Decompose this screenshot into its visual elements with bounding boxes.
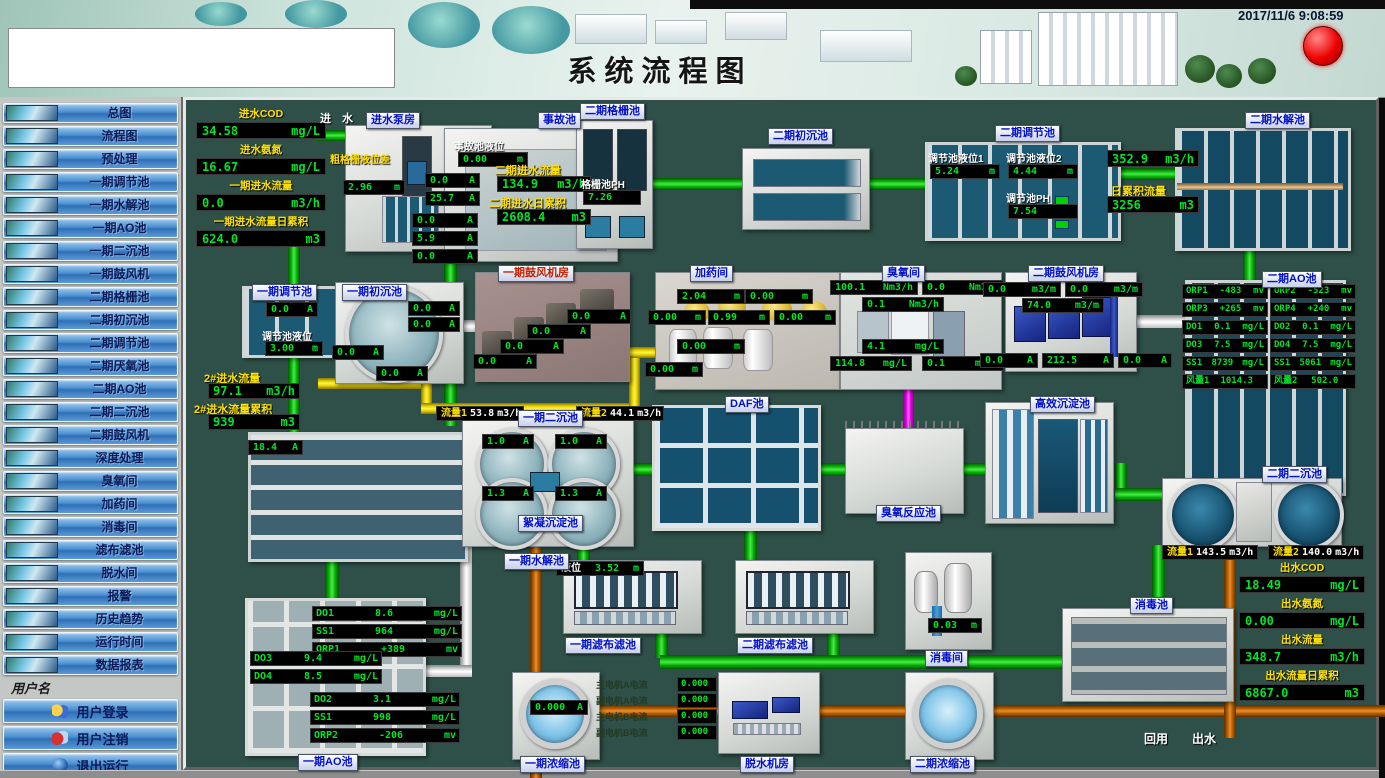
nav-thumbnail-icon — [6, 496, 58, 512]
ao2-readout: DO20.1mg/L — [1270, 320, 1356, 335]
sidebar-nav-item[interactable]: 滤布滤池 — [3, 540, 178, 560]
office-building-icon — [980, 30, 1032, 84]
ao2-readout: DO47.5mg/L — [1270, 338, 1356, 353]
belt-press-icon — [772, 697, 800, 713]
screen-level-label: 粗格栅液位差 — [330, 151, 390, 166]
datetime-display: 2017/11/6 9:08:59 — [1238, 8, 1344, 23]
stat-label: 出水流量日累积 — [1239, 668, 1365, 683]
stat-label: 一期进水流量 — [196, 178, 326, 193]
total2b-value: 2608.4m3 — [497, 209, 591, 225]
pump-current: 0.0A — [412, 249, 478, 264]
nav-thumbnail-icon — [6, 128, 58, 144]
nav-label: 历史趋势 — [62, 613, 177, 625]
badge-cloth2: 二期滤布滤池 — [737, 637, 813, 654]
badge-regulate1: 一期调节池 — [252, 284, 317, 301]
clarifier-photo-icon — [492, 6, 570, 54]
ao2-readout: DO10.1mg/L — [1182, 320, 1268, 335]
badge-blower2: 二期鼓风机房 — [1028, 265, 1104, 282]
sidebar-nav-item[interactable]: 一期二沉池 — [3, 241, 178, 261]
user-logout-icon — [52, 731, 68, 745]
stat-row: 进水COD 34.58mg/L — [196, 106, 326, 139]
filter-discs — [574, 571, 678, 609]
sidebar-nav-item[interactable]: 深度处理 — [3, 448, 178, 468]
nav-label: 二期初沉池 — [62, 314, 177, 326]
nav-label: 深度处理 — [62, 452, 177, 464]
dewater-motor-readouts: 主电机A电流 0.000 副电机A电流 0.000 主电机B电流 0.000 副… — [596, 676, 720, 740]
nav-thumbnail-icon — [6, 105, 58, 121]
disinfect-room — [905, 552, 992, 650]
secondary1-current: 1.0A — [482, 434, 534, 449]
badge-grille2: 二期格栅池 — [580, 103, 645, 120]
motor-label: 副电机A电流 — [596, 694, 674, 707]
nav-thumbnail-icon — [6, 220, 58, 236]
badge-thickener1: 一期浓缩池 — [520, 756, 585, 773]
sidebar-nav-item[interactable]: 流程图 — [3, 126, 178, 146]
filter-trough — [574, 611, 676, 625]
badge-disinfect-room: 消毒间 — [925, 650, 968, 667]
nav-label: 消毒间 — [62, 521, 177, 533]
badge-ozone-room: 臭氧间 — [882, 265, 925, 282]
badge-ao2: 二期AO池 — [1262, 271, 1322, 288]
blower1-current: 0.0A — [527, 324, 591, 339]
motor-current: 0.000 — [677, 725, 717, 740]
sidebar-nav-item[interactable]: 数据报表 — [3, 655, 178, 675]
motor-current: 0.000 — [677, 693, 717, 708]
badge-disinfect-tank: 消毒池 — [1130, 597, 1173, 614]
building-roof-icon — [575, 14, 647, 44]
nav-label: 预处理 — [62, 153, 177, 165]
stat-row: 出水氨氮 0.00mg/L — [1239, 596, 1365, 629]
sidebar-nav-item[interactable]: 运行时间 — [3, 632, 178, 652]
pipe-green — [827, 630, 840, 658]
sidebar-nav-item[interactable]: 报警 — [3, 586, 178, 606]
nav-thumbnail-icon — [6, 197, 58, 213]
sidebar-nav-item[interactable]: 加药间 — [3, 494, 178, 514]
nav-label: 流程图 — [62, 130, 177, 142]
motor-current: 0.000 — [677, 677, 717, 692]
reg1-current: 0.0A — [266, 302, 318, 317]
scada-screen: 系统流程图 2017/11/6 9:08:59 总图 流程图 预处理 — [0, 0, 1385, 778]
bottom-strip — [0, 770, 1379, 778]
reg1-level-value: 3.00m — [265, 341, 323, 356]
tree-icon — [1216, 64, 1242, 88]
nav-label: 二期二沉池 — [62, 406, 177, 418]
badge-primary2: 二期初沉池 — [768, 128, 833, 145]
ozone-flow: 0.1Nm3/h — [862, 297, 944, 312]
pipe-green — [648, 178, 746, 190]
stat-row: 出水流量日累积 6867.0m3 — [1239, 668, 1365, 701]
railing — [845, 421, 962, 429]
nav-label: 一期调节池 — [62, 176, 177, 188]
stat-value-box: 6867.0m3 — [1239, 684, 1365, 701]
flow2-total-value: 939m3 — [208, 414, 300, 430]
lamella-panels — [1080, 419, 1108, 513]
reuse-label: 回用 — [1144, 730, 1168, 747]
ao2-readout: ORP1-483mv — [1182, 284, 1268, 299]
blower1-current: 0.0A — [567, 309, 631, 324]
stat-value-box: 18.49mg/L — [1239, 576, 1365, 593]
nav-thumbnail-icon — [6, 565, 58, 581]
sidebar-nav-item[interactable]: 预处理 — [3, 149, 178, 169]
stat-label: 出水氨氮 — [1239, 596, 1365, 611]
dosing-level: 0.00m — [648, 310, 706, 325]
user-logout-label: 用户注销 — [76, 729, 128, 748]
pipe-tan — [1177, 183, 1343, 190]
motor-label: 主电机B电流 — [596, 710, 674, 723]
stat-row: 一期进水流量 0.0m3/h — [196, 178, 326, 211]
nav-label: 滤布滤池 — [62, 544, 177, 556]
nav-thumbnail-icon — [6, 657, 58, 673]
high-eff-unit — [985, 402, 1114, 524]
nav-thumbnail-icon — [6, 427, 58, 443]
hydrolysis1-current: 18.4A — [248, 440, 303, 455]
motor-row: 副电机B电流 0.000 — [596, 724, 720, 740]
badge-primary1: 一期初沉池 — [342, 284, 407, 301]
stat-value-box: 34.58mg/L — [196, 122, 326, 139]
secondary2-clarifier — [1168, 480, 1238, 550]
ozone-flow: 100.1Nm3/h — [830, 280, 918, 295]
sidebar-nav-item[interactable]: 二期AO池 — [3, 379, 178, 399]
pipe-white — [418, 665, 472, 677]
pipe-green — [655, 630, 668, 658]
badge-dosing: 加药间 — [690, 265, 733, 282]
nav-thumbnail-icon — [6, 174, 58, 190]
ao1-readouts-bottom: DO23.1mg/L SS1998mg/L ORP2-206mv — [310, 692, 460, 746]
nav-thumbnail-icon — [6, 243, 58, 259]
belt-press-icon — [732, 701, 768, 719]
conveyor-icon — [733, 723, 801, 735]
stat-label: 出水流量 — [1239, 632, 1365, 647]
reg2-level1-label: 调节池液位1 — [928, 150, 984, 165]
nav-thumbnail-icon — [6, 381, 58, 397]
sidebar-nav-item[interactable]: 一期鼓风机 — [3, 264, 178, 284]
thickener2-basin — [913, 679, 983, 749]
badge-secondary2: 二期二沉池 — [1262, 466, 1327, 483]
badge-pump-house: 进水泵房 — [366, 112, 420, 129]
dewater-room — [718, 672, 820, 754]
ao1-readout: DO39.4mg/L — [250, 651, 382, 666]
header-blank-panel — [8, 28, 395, 88]
sidebar-nav-item[interactable]: 脱水间 — [3, 563, 178, 583]
badge-accident-tank: 事故池 — [538, 112, 581, 129]
daf-tank — [652, 405, 821, 531]
east-flow-value: 352.9m3/h — [1107, 150, 1199, 167]
pipe-green — [1112, 168, 1178, 180]
user-login-button[interactable]: 用户登录 — [3, 699, 178, 723]
pump-current: 0.0A — [412, 213, 478, 228]
blower2-current: 212.5A — [1042, 353, 1114, 368]
building-roof-icon — [725, 12, 787, 40]
tree-icon — [1185, 55, 1215, 83]
stat-label: 出水COD — [1239, 560, 1365, 575]
motor-label: 副电机B电流 — [596, 726, 674, 739]
motor-row: 主电机B电流 0.000 — [596, 708, 720, 724]
filter-trough — [746, 611, 848, 625]
nav-label: 一期水解池 — [62, 199, 177, 211]
blower1-current: 0.0A — [500, 339, 564, 354]
grille-pump — [619, 216, 645, 238]
accident-level-label: 事故池液位 — [454, 138, 504, 153]
nav-label: 二期AO池 — [62, 383, 177, 395]
sidebar-nav-item[interactable]: 历史趋势 — [3, 609, 178, 629]
inflow-label: 进 水 — [320, 110, 357, 126]
nav-thumbnail-icon — [6, 151, 58, 167]
sidebar-nav-item[interactable]: 一期AO池 — [3, 218, 178, 238]
building-roof-icon — [655, 20, 707, 44]
stat-value-box: 16.67mg/L — [196, 158, 326, 175]
badge-flocculation: 絮凝沉淀池 — [518, 515, 583, 532]
username-label: 用户名 — [11, 678, 178, 697]
pump-current: 5.9A — [412, 231, 478, 246]
cloth1-level: 液位3.52m — [556, 561, 644, 576]
lamella-panels — [992, 409, 1034, 519]
filter-discs — [746, 571, 850, 609]
sidebar-nav-item[interactable]: 二期鼓风机 — [3, 425, 178, 445]
settling-lane — [753, 193, 861, 221]
nav-label: 总图 — [62, 107, 177, 119]
nav-label: 脱水间 — [62, 567, 177, 579]
badge-ao1: 一期AO池 — [298, 754, 358, 771]
sidebar-nav-item[interactable]: 一期水解池 — [3, 195, 178, 215]
badge-secondary1: 一期二沉池 — [518, 410, 583, 427]
stat-label: 进水氨氮 — [196, 142, 326, 157]
ao1-readout: SS1998mg/L — [310, 710, 460, 725]
page-title: 系统流程图 — [505, 48, 815, 90]
nav-thumbnail-icon — [6, 611, 58, 627]
dosing-level: 0.00m — [645, 362, 703, 377]
sidebar-nav-item[interactable]: 二期二沉池 — [3, 402, 178, 422]
nav-label: 一期AO池 — [62, 222, 177, 234]
pipe-yellow — [629, 352, 640, 414]
dosing-level: 0.00m — [745, 289, 813, 304]
sidebar-nav-item[interactable]: 二期初沉池 — [3, 310, 178, 330]
motor-label: 主电机A电流 — [596, 678, 674, 691]
pipe-green — [660, 655, 1066, 669]
nav-thumbnail-icon — [6, 358, 58, 374]
ozone-conc: 114.8mg/L — [830, 356, 912, 371]
ao1-readouts-mid: DO39.4mg/L DO48.5mg/L — [250, 651, 382, 687]
outflow-label: 出水 — [1192, 730, 1216, 747]
reg2-level1-value: 5.24m — [930, 164, 1000, 179]
nav-thumbnail-icon — [6, 542, 58, 558]
user-logout-button[interactable]: 用户注销 — [3, 726, 178, 750]
ao1-readout: DO23.1mg/L — [310, 692, 460, 707]
header-photo-banner: 系统流程图 2017/11/6 9:08:59 — [0, 0, 1385, 98]
ao2-readout: DO37.5mg/L — [1182, 338, 1268, 353]
ao1-readout: ORP2-206mv — [310, 728, 460, 743]
ao2-readouts-left: ORP1-483mv ORP3+265mv DO10.1mg/L DO37.5m… — [1182, 284, 1268, 392]
nav-thumbnail-icon — [6, 588, 58, 604]
reg2-level2-label: 调节池液位2 — [1006, 150, 1062, 165]
badge-ozone-reactor: 臭氧反应池 — [876, 505, 941, 522]
ao2-readout: SS18739mg/L — [1182, 356, 1268, 371]
badge-regulate2: 二期调节池 — [995, 125, 1060, 142]
pump-current: 0.0A — [425, 173, 480, 188]
grille-ph-label: 格栅池PH — [581, 176, 625, 191]
primary1-current: 0.0A — [376, 366, 428, 381]
blower2-flow: 0.0m3/m — [1065, 282, 1143, 297]
office-building-icon — [1038, 12, 1178, 86]
primary1-current: 0.0A — [408, 301, 460, 316]
stat-value-box: 0.0m3/h — [196, 194, 326, 211]
badge-dewater: 脱水机房 — [740, 756, 794, 773]
east-total-value: 3256m3 — [1107, 196, 1199, 213]
stat-row: 出水流量 348.7m3/h — [1239, 632, 1365, 665]
disinfect-level: 0.03m — [928, 618, 982, 633]
nav-thumbnail-icon — [6, 335, 58, 351]
reg2-ph-label: 调节池PH — [1006, 190, 1050, 205]
reg2-level2-value: 4.44m — [1008, 164, 1078, 179]
sidebar-nav-item[interactable]: 二期调节池 — [3, 333, 178, 353]
stat-value-box: 0.00mg/L — [1239, 612, 1365, 629]
grille-ph-value: 7.26 — [583, 190, 641, 205]
ao2-readout: ORP4+240mv — [1270, 302, 1356, 317]
pump-indicator — [1055, 220, 1069, 229]
reg2-ph-value: 7.54 — [1008, 204, 1078, 219]
clarifier-photo-icon — [408, 2, 480, 48]
badge-hydrolysis1: 一期水解池 — [504, 553, 569, 570]
alarm-lamp[interactable] — [1303, 26, 1343, 66]
outlet-stats: 出水COD 18.49mg/L 出水氨氮 0.00mg/L 出水流量 348. — [1239, 560, 1365, 704]
sidebar-nav-item[interactable]: 二期厌氧池 — [3, 356, 178, 376]
flow2-value: 97.1m3/h — [208, 383, 300, 399]
ao2-readout: 风量2502.0 — [1270, 374, 1356, 389]
ao1-readout: DO48.5mg/L — [250, 669, 382, 684]
flow2b-value: 134.9m3/h — [497, 176, 591, 192]
secondary1-current: 1.0A — [555, 434, 607, 449]
badge-blower1: 一期鼓风机房 — [498, 265, 574, 282]
nav-label: 一期鼓风机 — [62, 268, 177, 280]
stat-row: 一期进水流量日累积 624.0m3 — [196, 214, 326, 247]
secondary2-clarifier — [1274, 480, 1344, 550]
nav-label: 一期二沉池 — [62, 245, 177, 257]
secondary1-current: 1.3A — [482, 486, 534, 501]
blower2-current: 0.0A — [980, 353, 1038, 368]
sidebar-nav-item[interactable]: 消毒间 — [3, 517, 178, 537]
nav-thumbnail-icon — [6, 404, 58, 420]
ao1-readout: DO18.6mg/L — [312, 606, 462, 621]
nav-thumbnail-icon — [6, 312, 58, 328]
nav-label: 二期鼓风机 — [62, 429, 177, 441]
nav-label: 报警 — [62, 590, 177, 602]
secondary1-current: 1.3A — [555, 486, 607, 501]
primary1-current: 0.0A — [332, 345, 384, 360]
stat-row: 进水氨氮 16.67mg/L — [196, 142, 326, 175]
nav-label: 二期调节池 — [62, 337, 177, 349]
tree-icon — [955, 66, 977, 86]
badge-daf: DAF池 — [725, 396, 769, 413]
pipe-yellow — [629, 347, 658, 358]
pipe-green — [1115, 488, 1165, 501]
nav-label: 数据报表 — [62, 659, 177, 671]
pipe-green — [1243, 246, 1256, 282]
nav-label: 加药间 — [62, 498, 177, 510]
sidebar-nav-item[interactable]: 总图 — [3, 103, 178, 123]
screen-level-value: 2.96m — [343, 180, 405, 195]
sidebar-nav-item[interactable]: 臭氧间 — [3, 471, 178, 491]
ozone-reactor-tank — [845, 428, 964, 514]
dosing-level: 0.00m — [677, 339, 745, 354]
dosing-tank-icon — [743, 329, 773, 371]
motor-row: 主电机A电流 0.000 — [596, 676, 720, 692]
pump-icon — [407, 161, 427, 185]
contact-lanes — [1071, 617, 1227, 695]
pump-current: 25.7A — [425, 191, 480, 206]
nav-label: 臭氧间 — [62, 475, 177, 487]
sidebar-nav-item[interactable]: 二期格栅池 — [3, 287, 178, 307]
main-flow-diagram: 进水泵房 事故池 二期格栅池 二期初沉池 二期调节池 二期水解池 一期调节池 一… — [183, 97, 1379, 770]
ao2-readout: ORP3+265mv — [1182, 302, 1268, 317]
tree-icon — [1248, 58, 1276, 84]
stat-value-box: 348.7m3/h — [1239, 648, 1365, 665]
sidebar: 总图 流程图 预处理 一期调节池 — [0, 97, 183, 770]
blower2-flow: 0.0m3/m — [983, 282, 1061, 297]
nav-thumbnail-icon — [6, 266, 58, 282]
ao2-readouts-right: ORP2-523mv ORP4+240mv DO20.1mg/L DO47.5m… — [1270, 284, 1356, 392]
blower2-flow: 74.0m3/m — [1022, 298, 1104, 313]
ao1-readout: SS1964mg/L — [312, 624, 462, 639]
blower2-current: 0.0A — [1118, 353, 1172, 368]
secondary2-flow2: 流量2140.0m3/h — [1268, 545, 1364, 560]
nav-label: 运行时间 — [62, 636, 177, 648]
motor-current: 0.000 — [677, 709, 717, 724]
stat-row: 出水COD 18.49mg/L — [1239, 560, 1365, 593]
primary1-current: 0.0A — [408, 317, 460, 332]
building-roof-icon — [820, 30, 912, 62]
secondary2-gallery — [1236, 482, 1272, 542]
nav-thumbnail-icon — [6, 289, 58, 305]
nav-thumbnail-icon — [6, 473, 58, 489]
ao2-readout: SS15061mg/L — [1270, 356, 1356, 371]
pipe-green — [862, 178, 930, 190]
stat-value-box: 624.0m3 — [196, 230, 326, 247]
secondary1-flow2: 流量244.1m3/h — [576, 406, 664, 421]
stat-label: 一期进水流量日累积 — [196, 214, 326, 229]
clarifier-photo-icon — [285, 0, 347, 28]
settling-lane — [753, 159, 861, 187]
badge-hydrolysis2: 二期水解池 — [1245, 112, 1310, 129]
motor-row: 副电机A电流 0.000 — [596, 692, 720, 708]
dosing-level: 2.04m — [677, 289, 745, 304]
disinfect-tank — [1062, 608, 1234, 702]
badge-thickener2: 二期浓缩池 — [910, 756, 975, 773]
nav-thumbnail-icon — [6, 519, 58, 535]
clarifier-photo-icon — [195, 2, 247, 26]
secondary1-flow1: 流量153.8m3/h — [436, 406, 524, 421]
user-login-label: 用户登录 — [76, 702, 128, 721]
user-login-icon — [52, 704, 68, 718]
inlet-stats: 进水COD 34.58mg/L 进水氨氮 16.67mg/L 一期进水流量 0 — [196, 106, 326, 250]
badge-high-eff: 高效沉淀池 — [1030, 396, 1095, 413]
sedimentation-cell — [1038, 419, 1078, 513]
thickener1-current: 0.000A — [530, 700, 588, 715]
sidebar-nav: 总图 流程图 预处理 一期调节池 — [3, 103, 178, 675]
nav-label: 二期格栅池 — [62, 291, 177, 303]
stat-label: 进水COD — [196, 106, 326, 121]
secondary2-flow1: 流量1143.5m3/h — [1162, 545, 1258, 560]
chemical-tank-icon — [944, 563, 972, 613]
dosing-level: 0.99m — [708, 310, 770, 325]
ao2-readout: 风量11014.3 — [1182, 374, 1268, 389]
sidebar-nav-item[interactable]: 一期调节池 — [3, 172, 178, 192]
blower1-current: 0.0A — [473, 354, 537, 369]
badge-cloth1: 一期滤布滤池 — [565, 637, 641, 654]
cloth2-unit — [735, 560, 874, 634]
primary2-tank — [742, 148, 870, 230]
ozone-conc: 4.1mg/L — [862, 339, 944, 354]
nav-thumbnail-icon — [6, 634, 58, 650]
dosing-level: 0.00m — [774, 310, 836, 325]
